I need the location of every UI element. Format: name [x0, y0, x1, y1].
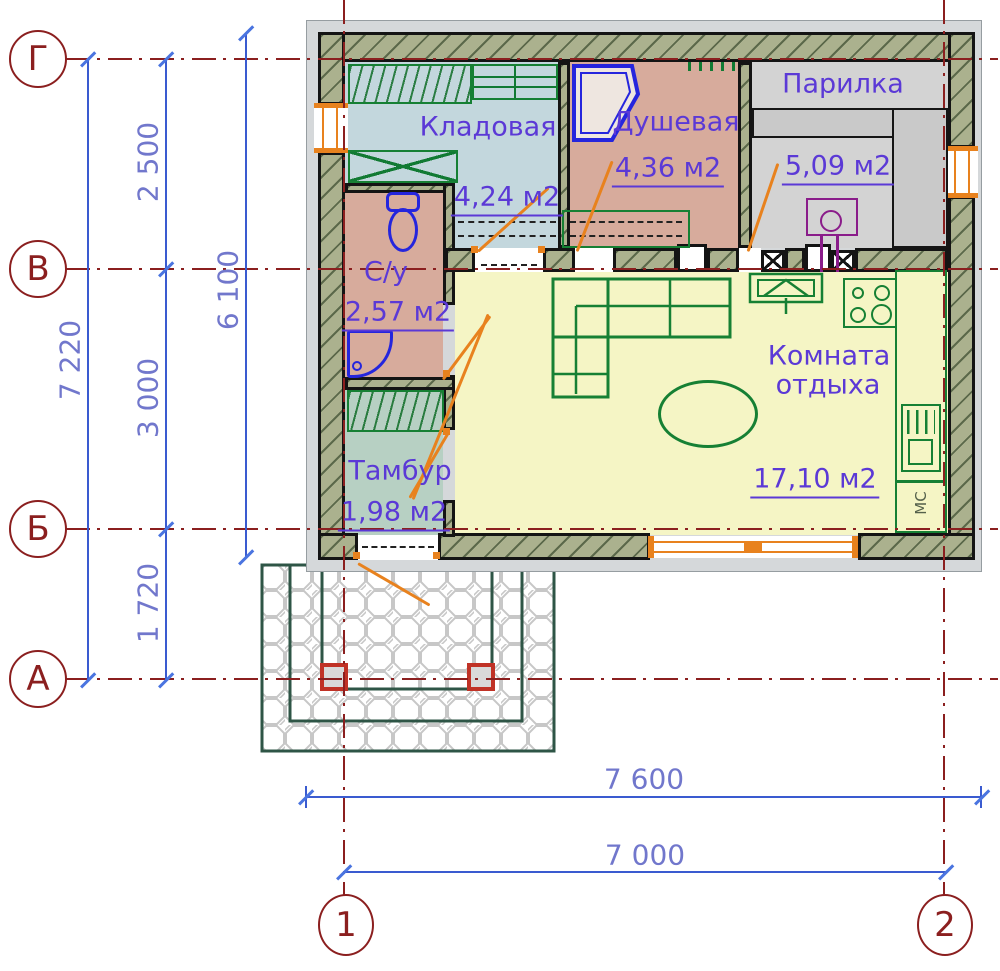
dim-inner-height: 6 100 — [212, 250, 245, 330]
door-hinge-mark — [433, 552, 440, 559]
washing-machine-label: МС — [912, 491, 930, 514]
dim-line-total-height — [87, 59, 89, 680]
room-label-steam: Парилка — [782, 69, 904, 100]
dim-seg-mid: 3 000 — [132, 358, 165, 438]
axis-line-1 — [343, 0, 345, 896]
window-right — [946, 146, 978, 198]
counter-divider — [895, 480, 947, 483]
toilet-icon — [386, 192, 422, 254]
room-area-storage: 4,24 м2 — [451, 182, 563, 217]
axis-marker-1: 1 — [318, 894, 374, 956]
room-label-vestibule: Тамбур — [348, 456, 451, 487]
axis-marker-b: Б — [9, 500, 67, 558]
dim-line-inner-height — [245, 33, 247, 557]
chest-icon — [348, 150, 458, 183]
threshold-dashes — [481, 264, 537, 266]
axis-marker-v: В — [9, 240, 67, 298]
room-area-wc: 2,57 м2 — [342, 297, 454, 332]
room-label-wc: С/у — [364, 257, 408, 288]
room-label-shower: Душевая — [612, 107, 739, 138]
wall-left — [318, 32, 345, 105]
dim-line-segments — [165, 59, 167, 680]
axis-line-g — [66, 58, 998, 60]
shelf-icon — [472, 64, 558, 100]
axis-marker-a: А — [9, 650, 67, 708]
axis-line-v — [66, 268, 998, 270]
room-label-storage: Кладовая — [420, 112, 557, 143]
door-hinge-mark — [538, 246, 545, 253]
wardrobe-icon — [347, 390, 444, 432]
threshold-dashes — [362, 546, 434, 548]
room-area-lounge: 17,10 м2 — [750, 464, 879, 499]
room-label-lounge-line2: отдыха — [776, 370, 881, 401]
wall-shower-steam — [738, 62, 752, 248]
loft-dashed-line — [458, 235, 556, 237]
window-bottom — [648, 536, 858, 558]
fireplace-icon — [748, 266, 824, 318]
door-hinge-mark — [353, 552, 360, 559]
appliance-icon — [901, 404, 941, 472]
room-area-shower: 4,36 м2 — [612, 153, 724, 188]
wall-bottom — [438, 533, 650, 560]
sauna-bench-icon — [752, 108, 894, 138]
shower-curtain-icon — [688, 62, 740, 71]
porch-column — [469, 665, 493, 689]
axis-marker-2: 2 — [917, 894, 973, 956]
table-icon — [658, 380, 758, 448]
dim-seg-bottom: 1 720 — [132, 563, 165, 643]
wall-bottom — [318, 533, 358, 560]
cooktop-icon — [843, 278, 897, 328]
wall-right — [948, 196, 975, 560]
axis-line-a — [66, 678, 998, 680]
sauna-bench-icon — [892, 108, 948, 248]
wall-bottom — [858, 533, 975, 560]
axis-line-b — [66, 528, 998, 530]
dim-line-total-width — [306, 796, 982, 798]
dim-axis-width: 7 000 — [605, 839, 685, 872]
wall-right — [948, 32, 975, 148]
room-label-lounge-line1: Комната — [768, 341, 891, 372]
room-area-vestibule: 1,98 м2 — [338, 497, 450, 532]
wall-wc-vestibule — [345, 377, 455, 390]
dim-seg-top: 2 500 — [132, 122, 165, 202]
sauna-stove-icon — [806, 198, 858, 236]
wardrobe-icon — [348, 64, 472, 104]
dim-total-width: 7 600 — [604, 763, 684, 796]
dim-total-height: 7 220 — [54, 320, 87, 400]
axis-marker-g: Г — [9, 30, 67, 88]
window-mullion — [744, 543, 762, 551]
axis-line-2 — [943, 0, 945, 896]
room-area-steam: 5,09 м2 — [782, 151, 894, 186]
floor-plan: МС 7 220 2 500 3 000 1 720 6 100 7 600 — [0, 0, 1000, 971]
stove-flue-line — [836, 236, 839, 272]
